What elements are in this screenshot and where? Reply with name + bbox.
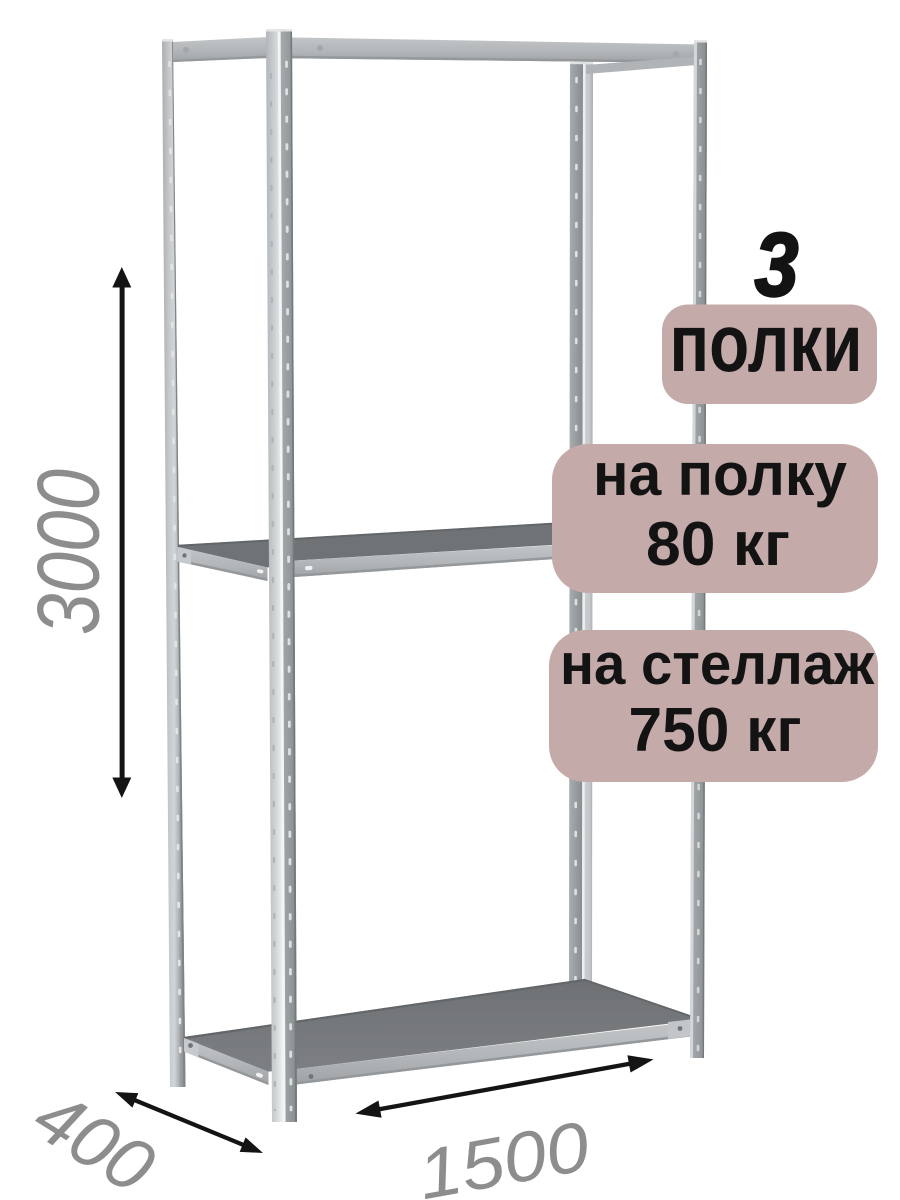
svg-text:1500: 1500 [412, 1107, 595, 1200]
svg-text:на стеллаж: на стеллаж [560, 632, 875, 697]
svg-text:3000: 3000 [19, 469, 118, 635]
svg-text:на полку: на полку [593, 441, 848, 508]
svg-text:400: 400 [20, 1073, 169, 1200]
svg-text:полки: полки [670, 298, 863, 389]
svg-text:750 кг: 750 кг [629, 696, 802, 765]
svg-text:80 кг: 80 кг [646, 510, 790, 579]
